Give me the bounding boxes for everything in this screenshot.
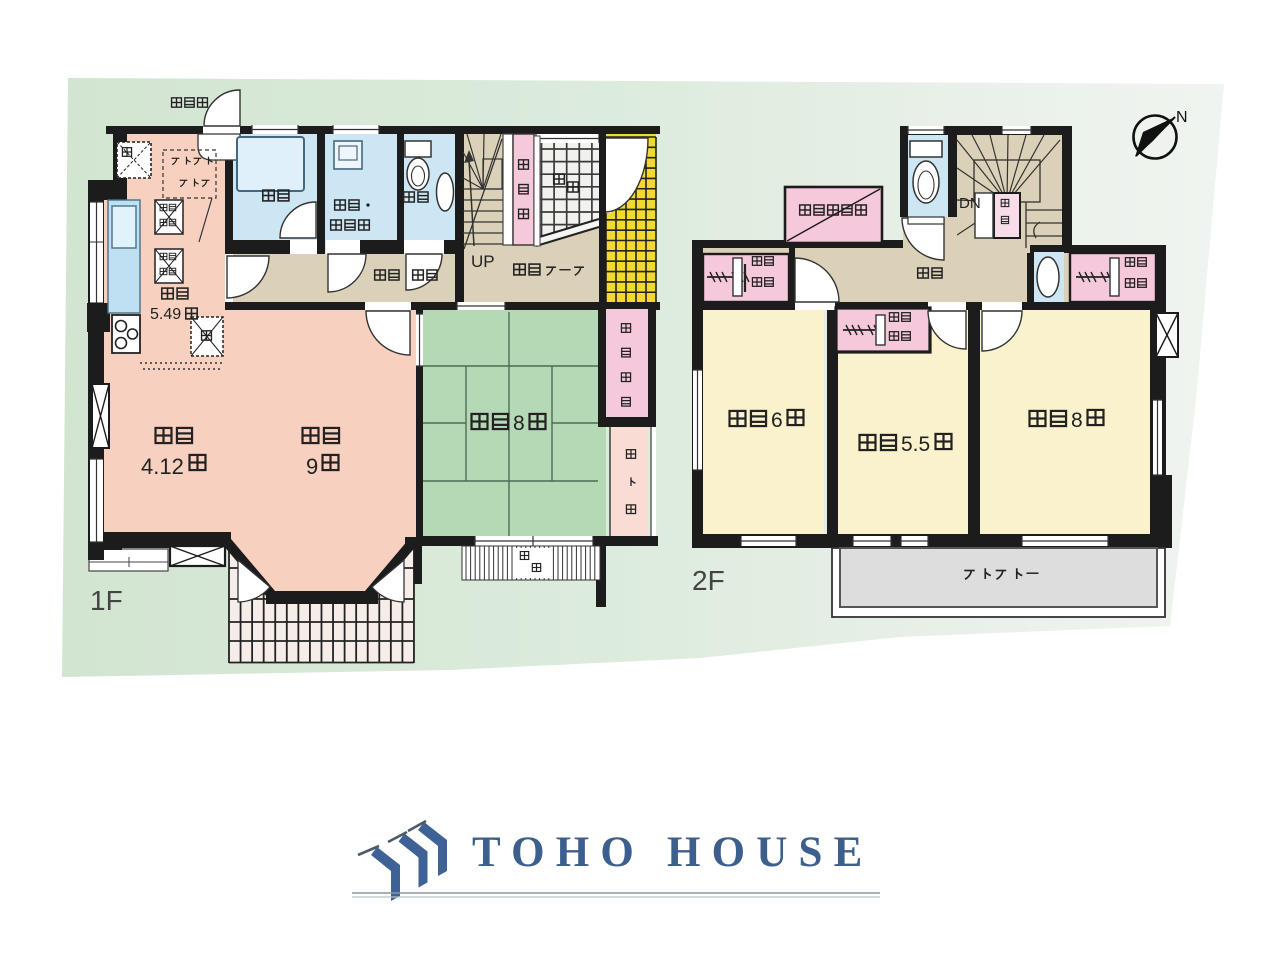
svg-text:8: 8 [1071,409,1083,432]
svg-text:5.49: 5.49 [150,306,181,323]
svg-text:8: 8 [513,412,525,435]
svg-text:9: 9 [306,454,318,479]
svg-text:N: N [1176,109,1188,126]
svg-text:1F: 1F [90,585,123,616]
svg-text:6: 6 [771,409,783,432]
svg-text:DN: DN [959,195,981,212]
svg-text:4.12: 4.12 [141,454,184,479]
svg-text:TOHO HOUSE: TOHO HOUSE [472,829,874,876]
svg-text:5.5: 5.5 [901,433,930,456]
svg-text:2F: 2F [692,565,725,596]
svg-text:UP: UP [471,252,495,271]
